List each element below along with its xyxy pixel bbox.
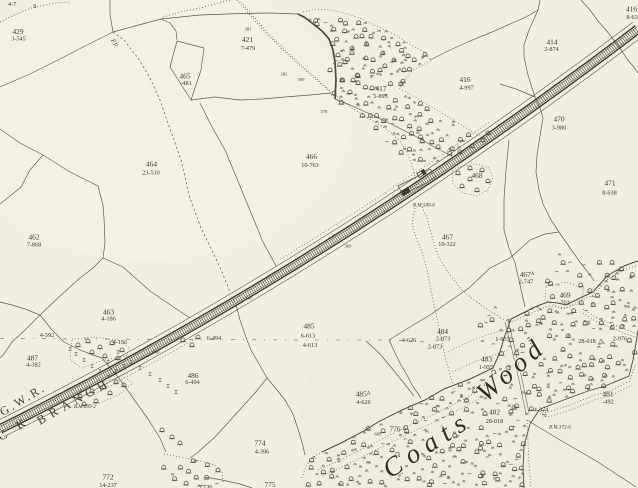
svg-text:6-494: 6-494 bbox=[185, 379, 199, 386]
svg-text:483: 483 bbox=[481, 355, 492, 364]
svg-text:773: 773 bbox=[198, 483, 209, 488]
svg-text:369: 369 bbox=[298, 77, 306, 82]
svg-text:2-976: 2-976 bbox=[613, 336, 627, 343]
svg-text:774: 774 bbox=[254, 439, 265, 448]
svg-text:417: 417 bbox=[375, 84, 386, 93]
svg-text:416: 416 bbox=[459, 75, 470, 84]
svg-text:609: 609 bbox=[375, 432, 383, 437]
svg-text:464: 464 bbox=[146, 160, 157, 169]
svg-text:23-510: 23-510 bbox=[142, 170, 160, 177]
svg-text:2-747: 2-747 bbox=[519, 279, 533, 286]
svg-text:467: 467 bbox=[442, 233, 453, 242]
svg-text:8-63: 8-63 bbox=[626, 14, 637, 21]
svg-text:482: 482 bbox=[489, 408, 500, 417]
svg-text:4-626: 4-626 bbox=[356, 399, 370, 406]
svg-text:470: 470 bbox=[553, 115, 564, 124]
svg-text:7-479: 7-479 bbox=[241, 45, 255, 52]
svg-text:B.M.372-6: B.M.372-6 bbox=[549, 424, 571, 430]
svg-text:381: 381 bbox=[245, 27, 253, 32]
svg-text:10-763: 10-763 bbox=[301, 162, 319, 169]
svg-text:775: 775 bbox=[264, 480, 275, 488]
svg-text:4-7: 4-7 bbox=[8, 1, 16, 8]
svg-text:-492: -492 bbox=[602, 399, 613, 406]
svg-text:468: 468 bbox=[471, 171, 482, 180]
svg-text:4-396: 4-396 bbox=[255, 449, 269, 456]
svg-text:6-494: 6-494 bbox=[207, 335, 221, 342]
svg-text:14-237: 14-237 bbox=[99, 482, 117, 488]
svg-text:2-873: 2-873 bbox=[436, 336, 450, 343]
svg-text:10-322: 10-322 bbox=[438, 241, 456, 248]
svg-text:4-156: 4-156 bbox=[113, 339, 127, 346]
svg-text:4-997: 4-997 bbox=[459, 85, 473, 92]
svg-text:3-980: 3-980 bbox=[552, 125, 566, 132]
svg-text:776: 776 bbox=[389, 425, 400, 434]
svg-text:462: 462 bbox=[28, 233, 39, 242]
svg-text:197: 197 bbox=[246, 296, 254, 301]
svg-text:414: 414 bbox=[546, 38, 557, 47]
svg-text:471: 471 bbox=[604, 179, 615, 188]
svg-text:378: 378 bbox=[321, 109, 329, 114]
svg-text:382: 382 bbox=[281, 72, 289, 77]
svg-text:465: 465 bbox=[179, 72, 190, 81]
svg-text:28-018: 28-018 bbox=[486, 418, 504, 425]
svg-text:7-868: 7-868 bbox=[27, 242, 41, 249]
svg-text:-481: -481 bbox=[180, 80, 191, 87]
svg-text:2-873: 2-873 bbox=[428, 344, 442, 351]
svg-text:4-613: 4-613 bbox=[303, 342, 317, 349]
svg-text:4-592: 4-592 bbox=[40, 332, 54, 339]
svg-text:4-186: 4-186 bbox=[101, 316, 115, 323]
svg-text:466: 466 bbox=[306, 152, 317, 161]
svg-text:. S: . S bbox=[30, 3, 37, 10]
svg-text:369: 369 bbox=[345, 244, 353, 249]
svg-text:484: 484 bbox=[437, 327, 448, 336]
svg-text:880: 880 bbox=[153, 350, 161, 355]
svg-text:8-638: 8-638 bbox=[602, 190, 616, 197]
svg-text:416: 416 bbox=[626, 5, 637, 14]
svg-text:3-545: 3-545 bbox=[11, 36, 25, 43]
svg-text:28-018: 28-018 bbox=[578, 338, 596, 345]
svg-text:5-893: 5-893 bbox=[373, 93, 387, 100]
svg-text:1-955: 1-955 bbox=[495, 336, 509, 343]
svg-text:-702: -702 bbox=[558, 300, 569, 307]
svg-text:2-874: 2-874 bbox=[544, 46, 558, 53]
svg-text:421: 421 bbox=[242, 35, 253, 44]
svg-text:481: 481 bbox=[602, 390, 613, 399]
svg-text:6-613: 6-613 bbox=[301, 333, 315, 340]
svg-text:772: 772 bbox=[102, 473, 113, 482]
svg-text:485: 485 bbox=[303, 322, 314, 331]
svg-text:B.M.500-0: B.M.500-0 bbox=[413, 202, 435, 208]
svg-text:429: 429 bbox=[12, 27, 23, 36]
svg-text:4-382: 4-382 bbox=[26, 362, 40, 369]
svg-text:469: 469 bbox=[559, 291, 570, 300]
svg-text:4-626: 4-626 bbox=[402, 337, 416, 344]
